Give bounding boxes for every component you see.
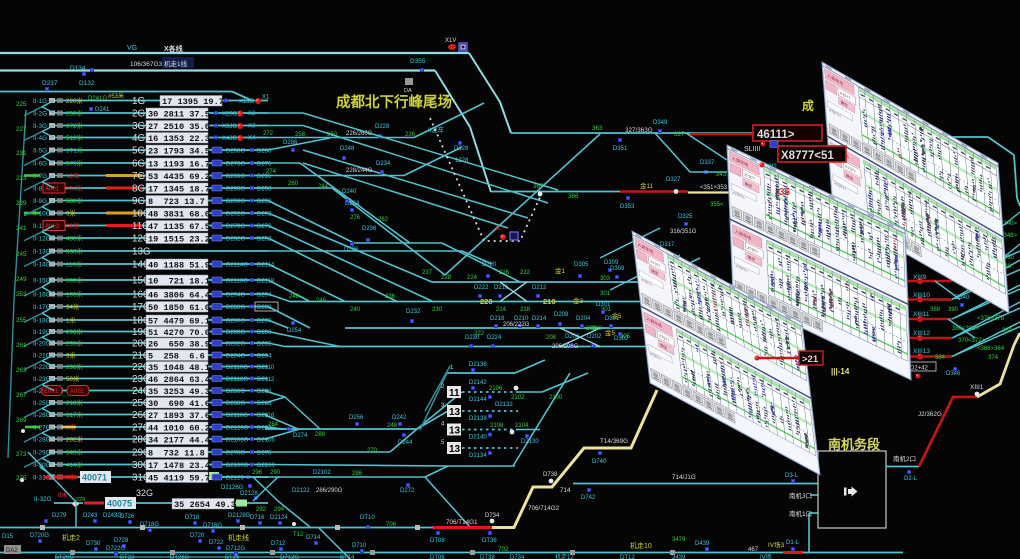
svg-text:46111>: 46111> (757, 129, 795, 141)
svg-text:|||-14: |||-14 (831, 367, 850, 376)
svg-text:36: 36 (779, 187, 791, 198)
svg-text:XII2: XII2 (766, 164, 777, 170)
svg-text:X8777<51: X8777<51 (781, 150, 834, 162)
svg-text:SLIIII: SLIIII (744, 146, 760, 153)
svg-text:>21: >21 (802, 354, 819, 365)
